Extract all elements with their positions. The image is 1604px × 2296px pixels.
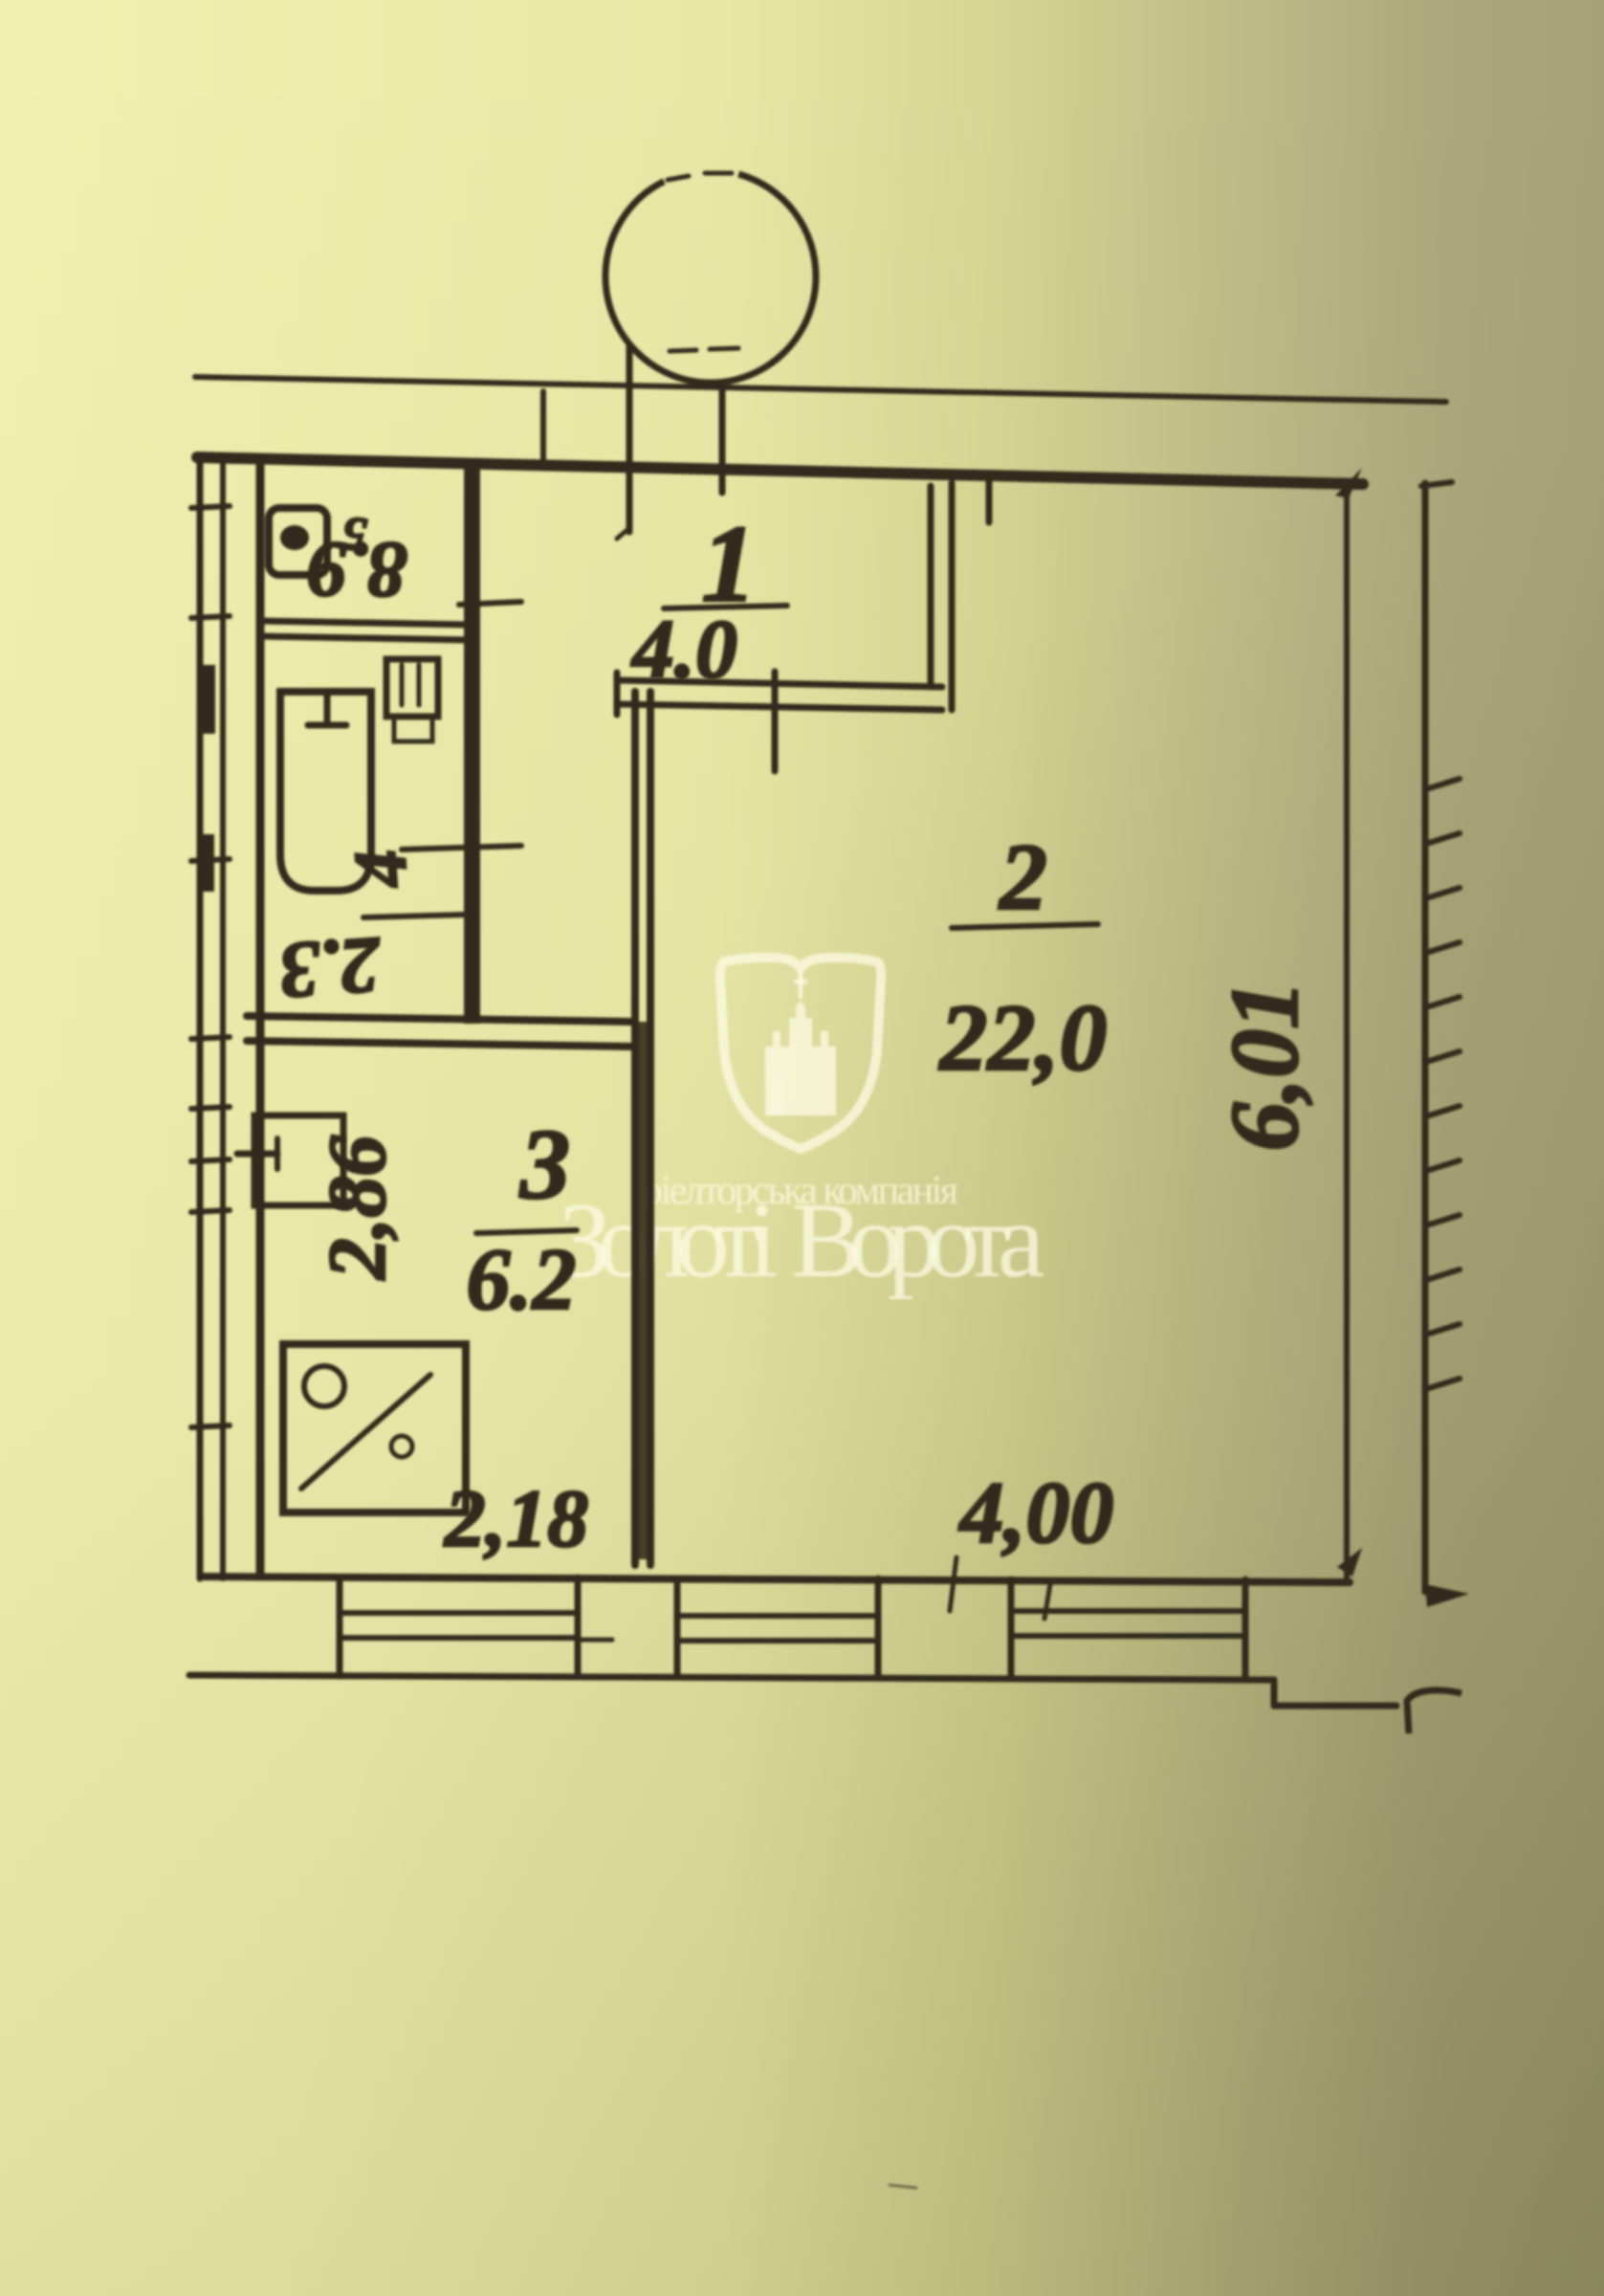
svg-text:Золоті: Золоті [558, 1181, 778, 1300]
svg-text:22,0: 22,0 [938, 984, 1108, 1091]
svg-text:2,86: 2,86 [311, 1136, 403, 1282]
svg-text:4: 4 [338, 847, 424, 892]
svg-text:4,00: 4,00 [958, 1464, 1114, 1561]
svg-text:4.0: 4.0 [630, 604, 737, 696]
svg-text:5: 5 [341, 507, 369, 563]
svg-text:6,01: 6,01 [1211, 981, 1319, 1152]
svg-text:2.3: 2.3 [276, 919, 385, 1015]
svg-text:2,18: 2,18 [443, 1472, 589, 1564]
svg-text:Ворота: Ворота [792, 1181, 1045, 1300]
svg-text:2: 2 [998, 824, 1047, 930]
svg-text:6.2: 6.2 [467, 1230, 577, 1328]
svg-text:3: 3 [519, 1108, 571, 1220]
